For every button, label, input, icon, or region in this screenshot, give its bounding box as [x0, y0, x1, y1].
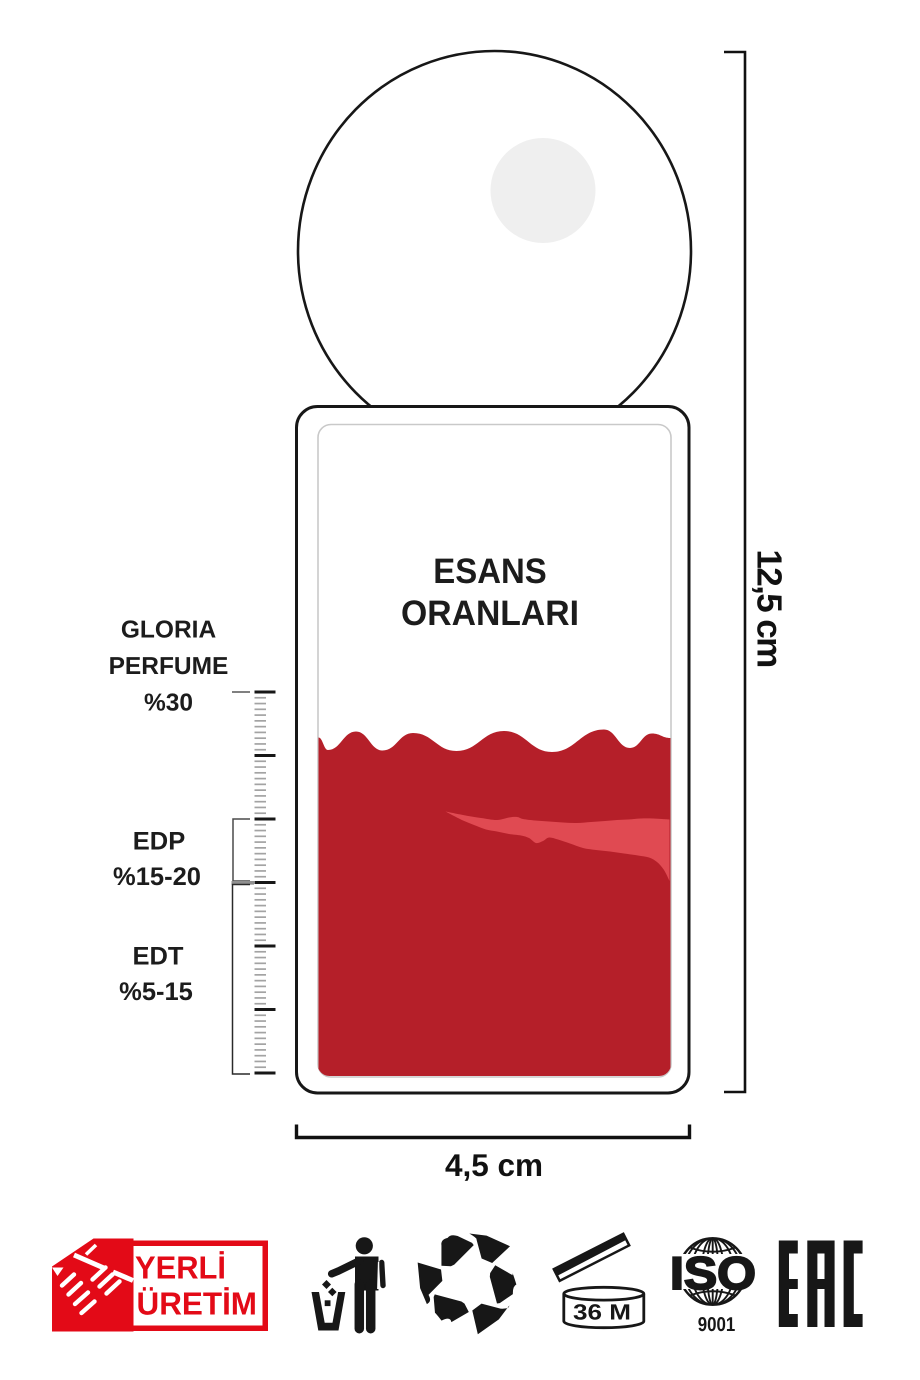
svg-text:EDP: EDP	[133, 828, 185, 856]
svg-text:12,5 cm: 12,5 cm	[750, 549, 789, 666]
svg-text:YERLİ: YERLİ	[135, 1250, 226, 1286]
svg-text:%5-15: %5-15	[119, 978, 193, 1006]
svg-text:GLORIA: GLORIA	[121, 617, 217, 644]
svg-text:4,5 cm: 4,5 cm	[445, 1147, 543, 1183]
svg-text:ESANS: ESANS	[433, 551, 547, 591]
svg-text:36 M: 36 M	[573, 1300, 631, 1325]
svg-text:9001: 9001	[698, 1314, 736, 1336]
svg-text:EDT: EDT	[133, 943, 184, 971]
svg-text:ÜRETİM: ÜRETİM	[137, 1286, 258, 1322]
svg-text:%30: %30	[144, 690, 193, 717]
svg-text:ISO: ISO	[670, 1247, 756, 1299]
svg-text:ORANLARI: ORANLARI	[401, 593, 579, 633]
svg-text:PERFUME: PERFUME	[109, 653, 229, 680]
svg-text:%15-20: %15-20	[113, 863, 201, 891]
